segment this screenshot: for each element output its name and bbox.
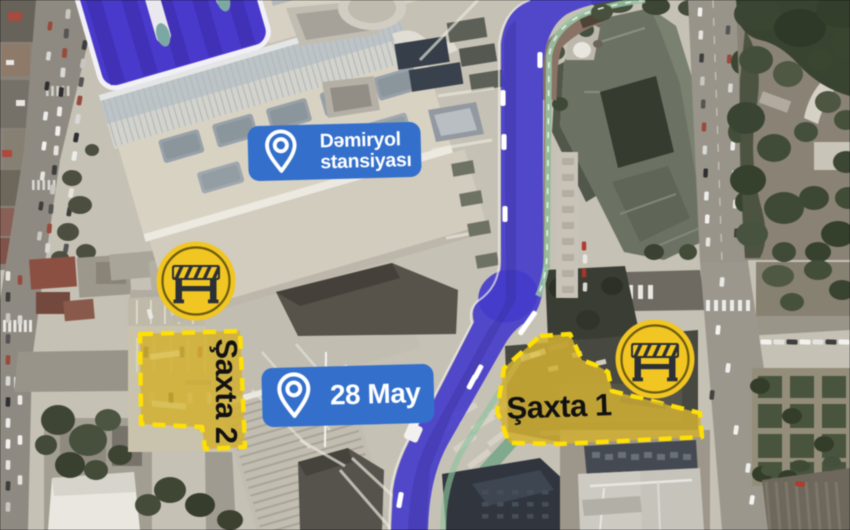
svg-text:stansiyası: stansiyası: [320, 149, 412, 173]
svg-text:28 May: 28 May: [330, 377, 422, 410]
svg-text:Şaxta 1: Şaxta 1: [506, 387, 612, 426]
svg-text:Şaxta 2: Şaxta 2: [209, 338, 244, 443]
